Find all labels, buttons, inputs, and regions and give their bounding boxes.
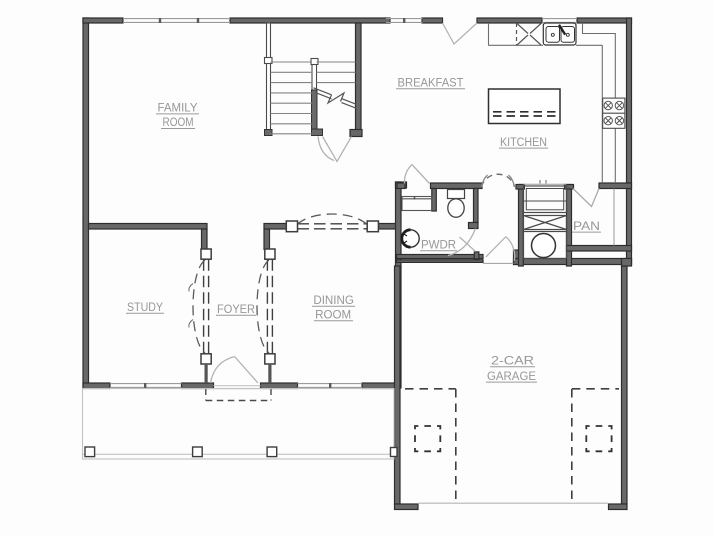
- svg-text:GARAGE: GARAGE: [487, 371, 536, 383]
- svg-text:STUDY: STUDY: [127, 302, 163, 314]
- svg-text:ROOM: ROOM: [163, 117, 194, 129]
- svg-text:KITCHEN: KITCHEN: [500, 137, 547, 149]
- svg-text:FOYER: FOYER: [217, 304, 255, 316]
- svg-text:2-CAR: 2-CAR: [491, 356, 534, 368]
- svg-text:BREAKFAST: BREAKFAST: [398, 78, 464, 90]
- svg-text:PWDR: PWDR: [421, 240, 456, 252]
- svg-text:PAN: PAN: [573, 221, 600, 233]
- svg-text:DINING: DINING: [313, 295, 354, 307]
- svg-text:FAMILY: FAMILY: [158, 103, 198, 115]
- svg-text:ROOM: ROOM: [315, 310, 351, 322]
